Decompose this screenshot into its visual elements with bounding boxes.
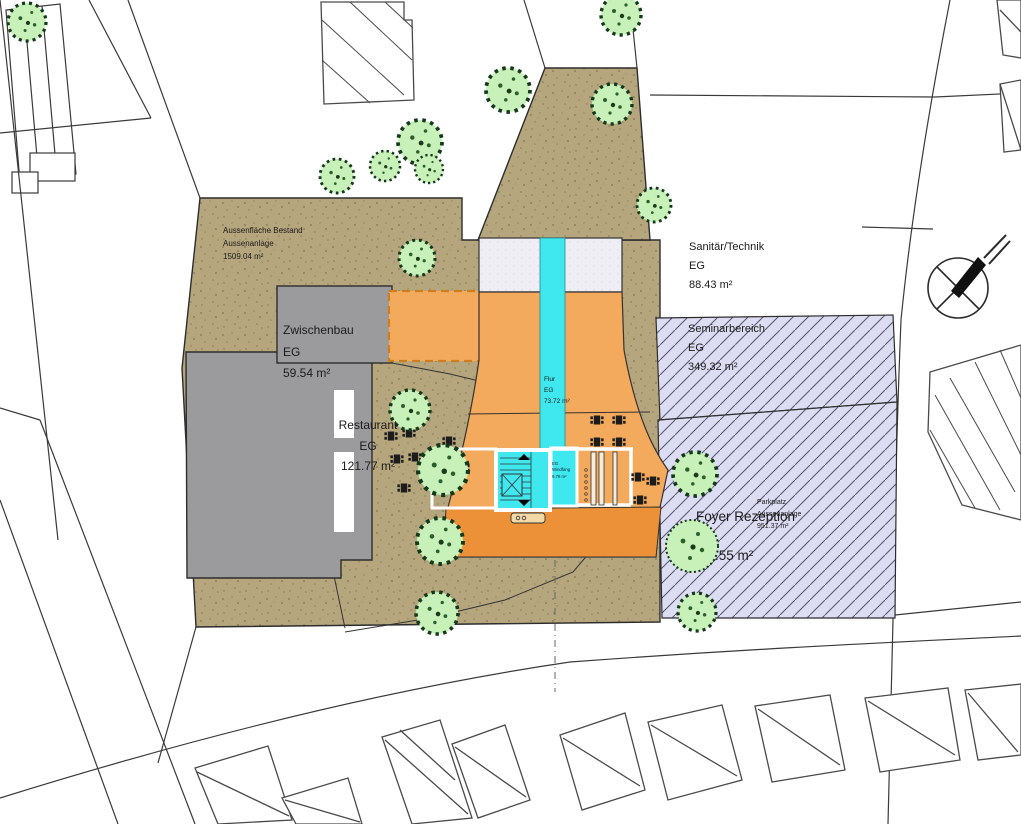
north-arrow-icon	[928, 235, 1010, 318]
area-name: Aussenfläche Bestand	[223, 224, 303, 237]
area-name: Parkplatz	[757, 497, 801, 509]
area-name: Windfang	[552, 467, 570, 473]
area-floor: EG	[544, 385, 570, 396]
area-size: 9.78 m²	[552, 474, 570, 480]
stair-core	[496, 450, 550, 510]
area-size: 1509.04 m²	[223, 250, 303, 263]
area-name: Zwischenbau	[283, 320, 354, 342]
label-aussenflaeche: Aussenfläche Bestand Aussenanlage 1509.0…	[223, 224, 303, 263]
terrace-band	[389, 291, 480, 361]
area-name: Aussenanlage	[223, 237, 303, 250]
area-name: Sanitär/Technik	[689, 238, 764, 257]
site-plan-drawing	[0, 0, 1021, 824]
area-name: Aussenanlage	[757, 509, 801, 521]
bench-icon	[511, 513, 545, 523]
area-size: 951.37 m²	[757, 521, 801, 533]
site-plan: Aussenfläche Bestand Aussenanlage 1509.0…	[0, 0, 1021, 824]
corridor	[540, 238, 565, 452]
area-floor: EG	[688, 339, 765, 358]
area-size: 59.54 m²	[283, 363, 354, 385]
area-name: Restaurant	[323, 415, 413, 436]
area-name: Seminarbereich	[688, 320, 765, 339]
label-restaurant: Restaurant EG 121.77 m²	[323, 415, 413, 477]
area-size: 121.77 m²	[323, 456, 413, 477]
label-zwischenbau: Zwischenbau EG 59.54 m²	[283, 320, 354, 385]
area-size: 349.32 m²	[688, 358, 765, 377]
area-floor: EG	[689, 257, 764, 276]
label-sanitaer-technik: Sanitär/Technik EG 88.43 m²	[689, 238, 764, 295]
building-lower-band	[443, 507, 661, 557]
label-parkplatz: Parkplatz Aussenanlage 951.37 m²	[757, 497, 801, 533]
elevator-icon	[502, 474, 522, 496]
area-floor: EG	[323, 436, 413, 457]
label-seminarbereich: Seminarbereich EG 349.32 m²	[688, 320, 765, 377]
area-size: 88.43 m²	[689, 276, 764, 295]
area-name: Flur	[544, 374, 570, 385]
label-flur: Flur EG 73.72 m²	[544, 374, 570, 407]
area-size: 73.72 m²	[544, 396, 570, 407]
bench-icon	[591, 452, 617, 505]
tree-icon	[650, 504, 740, 594]
label-windfang: EG Windfang 9.78 m²	[552, 461, 570, 480]
area-floor: EG	[283, 342, 354, 364]
